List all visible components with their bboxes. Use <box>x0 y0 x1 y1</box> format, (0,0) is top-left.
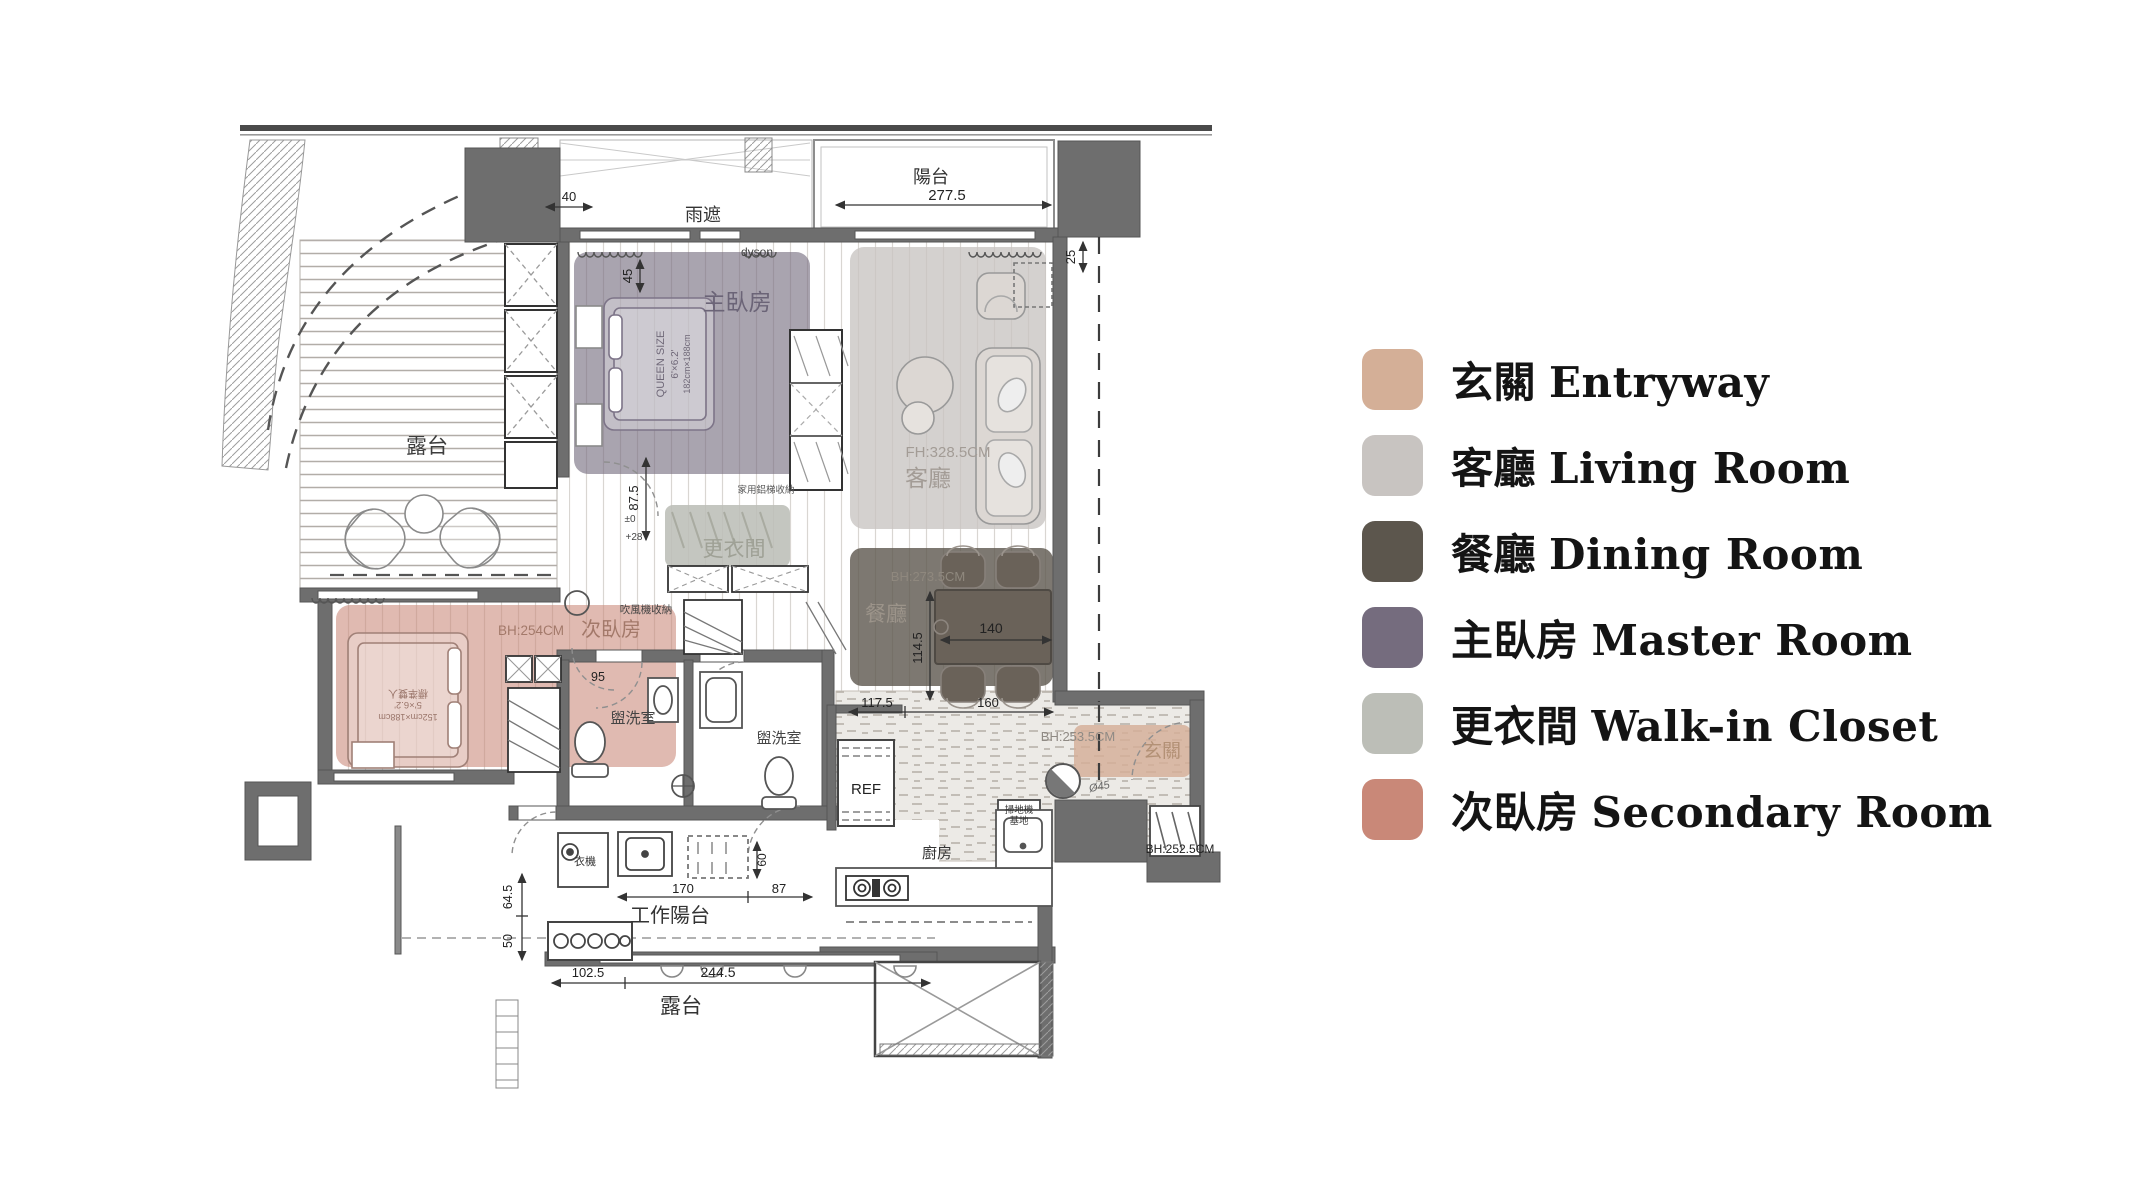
master-room-label: 主臥房 <box>703 289 772 315</box>
shaft-hatch-bottom <box>880 1044 1040 1055</box>
legend-en: Dining Room <box>1549 530 1863 579</box>
legend-zh: 更衣間 <box>1451 702 1579 751</box>
dim-master-top: 45 <box>620 269 635 283</box>
legend-row-living: 客廳Living Room <box>1362 435 1993 496</box>
legend-en: Master Room <box>1592 616 1913 665</box>
legend-label: 主臥房Master Room <box>1451 607 1913 668</box>
secondary-bed-line3: 152cm×188cm <box>378 712 437 722</box>
dim-kitchen-right: 160 <box>977 695 999 710</box>
dim-terrace-w2: 244.5 <box>700 964 735 980</box>
terrace-bottom-label: 露台 <box>660 995 702 1018</box>
work-balcony-west-edge <box>395 826 401 954</box>
dim-bath-door: 60 <box>755 853 769 867</box>
entry-north-wall <box>1055 691 1204 705</box>
legend-label: 更衣間Walk-in Closet <box>1451 693 1938 754</box>
entry-label: 玄關 <box>1143 740 1181 762</box>
work-balcony-label: 工作陽台 <box>630 904 710 927</box>
dim-dining-depth: 114.5 <box>910 632 925 664</box>
bathA-door-gap <box>596 650 642 662</box>
living-armchair <box>977 273 1025 319</box>
legend-label: 玄關Entryway <box>1451 349 1769 410</box>
legend-en: Walk-in Closet <box>1592 702 1939 751</box>
column-bottom-left-core <box>258 796 298 846</box>
secondary-bh-label: BH:254CM <box>498 623 564 638</box>
dining-bh-label: BH:273.5CM <box>891 569 965 584</box>
secondary-west-wall <box>318 602 332 778</box>
dim-master-bottom: 87.5 <box>626 485 641 510</box>
curved-facade-band <box>222 140 305 470</box>
dim-canopy-offset: 40 <box>562 189 576 204</box>
terrace-left-label: 露台 <box>406 435 448 458</box>
legend-label: 餐廳Dining Room <box>1451 521 1863 582</box>
secondary-swatch <box>1362 779 1423 840</box>
legend-row-closet: 更衣間Walk-in Closet <box>1362 693 1993 754</box>
hair-dryer-label: 吹風機收納 <box>620 603 673 616</box>
legend-zh: 主臥房 <box>1451 616 1579 665</box>
balcony-top-label: 陽台 <box>913 167 949 187</box>
vacuum-dock-line2: 基地 <box>1009 815 1029 827</box>
closet-swatch <box>1362 693 1423 754</box>
legend-label: 客廳Living Room <box>1451 435 1850 496</box>
legend-label: 次臥房Secondary Room <box>1451 779 1993 840</box>
kitchen-label: 廚房 <box>922 844 952 862</box>
dining-swatch <box>1362 521 1423 582</box>
washer-label: 衣機 <box>574 854 596 868</box>
secondary-north-window <box>318 591 478 599</box>
dim-left-lower: 50 <box>501 934 515 948</box>
dim-dining-table: 140 <box>979 620 1003 636</box>
shoe-bh-label: BH:252.5CM <box>1146 842 1215 856</box>
master-bed-line1: QUEEN SIZE <box>655 331 667 398</box>
north-window-3 <box>855 231 1035 239</box>
dim-work-right: 87 <box>772 881 786 896</box>
dim-secondary-door: 95 <box>591 670 605 684</box>
bathA-label: 盥洗室 <box>610 710 655 727</box>
legend-zh: 餐廳 <box>1451 530 1536 579</box>
street-line-thin <box>240 134 1212 136</box>
dim-left-upper: 64.5 <box>501 885 515 909</box>
master-west-wall <box>557 242 569 477</box>
floorplan-page: 陽台 277.5 雨遮 40 dyson 25 45 主臥房 QUEEN SIZ… <box>0 0 2136 1200</box>
terrace-cabinet-column <box>505 244 557 488</box>
entry-storage-block <box>1055 800 1147 862</box>
living-swatch <box>1362 435 1423 496</box>
dim-right-offset: 25 <box>1063 250 1078 264</box>
ref-nook-left <box>827 705 836 830</box>
legend-zh: 客廳 <box>1451 444 1536 493</box>
legend: 玄關Entryway 客廳Living Room 餐廳Dining Room 主… <box>1362 349 1993 840</box>
column-top-right <box>1058 141 1140 237</box>
secondary-room-label: 次臥房 <box>581 618 641 641</box>
legend-en: Secondary Room <box>1592 788 1993 837</box>
dyson-label: dyson <box>741 245 773 259</box>
living-sofa <box>976 348 1040 524</box>
secondary-bed-line1: 標準雙人 <box>388 687 428 700</box>
legend-row-dining: 餐廳Dining Room <box>1362 521 1993 582</box>
entry-bh-label: BH:253.5CM <box>1041 729 1115 744</box>
legend-zh: 玄關 <box>1451 358 1536 407</box>
ladder-strip <box>496 1000 518 1088</box>
legend-en: Living Room <box>1549 444 1850 493</box>
north-window-1 <box>580 231 690 239</box>
work-balcony-south-window <box>600 955 900 963</box>
dining-room-label: 餐廳 <box>865 603 907 626</box>
living-fh-label: FH:328.5CM <box>905 444 990 461</box>
master-swatch <box>1362 607 1423 668</box>
column-top-left <box>465 148 560 242</box>
legend-row-entryway: 玄關Entryway <box>1362 349 1993 410</box>
dim-work-left: 170 <box>672 881 694 896</box>
ladder-storage-label: 家用鋁梯收納 <box>737 484 794 496</box>
vacuum-dock-line1: 掃地機 <box>1005 804 1034 816</box>
north-window-2 <box>700 231 740 239</box>
dim-terrace-w1: 102.5 <box>572 965 605 980</box>
bathB-label: 盥洗室 <box>756 730 801 747</box>
fridge-label: REF <box>851 781 881 798</box>
master-bed-line3: 182cm×188cm <box>682 334 692 393</box>
legend-zh: 次臥房 <box>1451 788 1579 837</box>
canopy-post-right <box>745 138 772 172</box>
master-bed-line2: 6'×6.2' <box>670 349 681 378</box>
shaft-hatch-right <box>1040 962 1053 1056</box>
legend-row-master: 主臥房Master Room <box>1362 607 1993 668</box>
legend-row-secondary: 次臥房Secondary Room <box>1362 779 1993 840</box>
terrace-table <box>405 495 443 533</box>
east-wall <box>1053 237 1067 702</box>
entryway-swatch <box>1362 349 1423 410</box>
level-28-label: +28 <box>626 532 643 543</box>
dim-kitchen-left: 117.5 <box>861 695 893 710</box>
master-wardrobe <box>790 330 848 490</box>
legend-en: Entryway <box>1549 358 1769 407</box>
coffee-table-small <box>902 402 934 434</box>
living-room-label: 客廳 <box>905 465 951 491</box>
street-line <box>240 125 1212 131</box>
secondary-south-window <box>334 773 454 781</box>
closet-label: 更衣間 <box>703 538 766 561</box>
level-zero-label: ±0 <box>624 514 635 525</box>
dim-balcony-width: 277.5 <box>928 187 966 204</box>
secondary-bed-line2: 5'×6.2' <box>394 699 422 710</box>
canopy-label: 雨遮 <box>685 205 721 225</box>
